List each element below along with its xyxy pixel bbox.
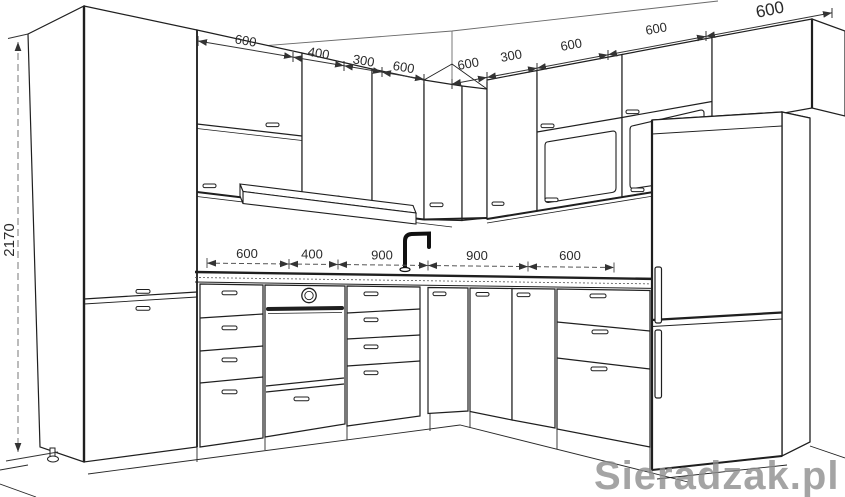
- dim-label: 600: [559, 248, 581, 263]
- dim-label: 600: [754, 0, 786, 22]
- drawer-handle: [222, 326, 237, 330]
- drawer-handle: [590, 294, 606, 298]
- door-handle: [433, 292, 446, 296]
- cabinet-handle: [545, 198, 558, 202]
- fridge-handle-upper: [655, 267, 662, 323]
- drawer-handle: [364, 292, 378, 296]
- kitchen-line-drawing: 600 400 300 600 600 300 600 600 600 600 …: [0, 0, 845, 497]
- cabinet-handle: [626, 110, 639, 114]
- cabinet-handle: [541, 124, 554, 128]
- dim-label: 600: [456, 54, 480, 73]
- dim-label: 600: [559, 35, 583, 54]
- cabinet-handle: [430, 203, 443, 207]
- drawer-handle: [222, 291, 237, 295]
- drawer-handle: [592, 330, 608, 334]
- dim-label: 600: [236, 246, 258, 261]
- cabinet-handle: [266, 123, 279, 127]
- tall-pantry-cabinet: [28, 6, 197, 462]
- oven-unit: [265, 285, 345, 437]
- oven-handle: [268, 308, 342, 309]
- dim-label: 400: [301, 247, 323, 262]
- door-handle: [476, 293, 489, 297]
- oven-knob: [305, 291, 313, 299]
- base-drawer-stack-right: [557, 289, 650, 447]
- cabinet-handle: [631, 188, 644, 192]
- drawer-handle: [591, 367, 607, 371]
- dim-label-height: 2170: [1, 223, 18, 256]
- refrigerator: [652, 112, 845, 479]
- kitchen-drawing-canvas: 600 400 300 600 600 300 600 600 600 600 …: [0, 0, 845, 497]
- dim-label: 900: [371, 247, 393, 262]
- adjustable-foot: [48, 456, 59, 462]
- cabinet-handle: [203, 184, 216, 188]
- glass-door-panel: [545, 131, 616, 202]
- door-handle: [517, 293, 530, 297]
- fridge-handle-lower: [655, 330, 662, 398]
- drawer-handle: [364, 345, 378, 349]
- drawer-handle: [294, 397, 309, 401]
- watermark: Sieradzak.pl: [594, 454, 839, 497]
- dim-label: 900: [466, 248, 488, 263]
- dim-label: 600: [644, 19, 668, 38]
- drawer-handle: [222, 358, 237, 362]
- cabinet-handle: [136, 307, 150, 311]
- base-door-cabinets: [428, 288, 555, 429]
- drawer-handle: [364, 318, 378, 322]
- base-drawer-stack-left: [200, 284, 263, 447]
- cabinet-handle: [492, 202, 504, 205]
- drawer-handle: [222, 390, 237, 394]
- corner-wall-cabinet: [424, 64, 487, 221]
- drawer-handle: [364, 371, 378, 375]
- above-fridge-tall-cabinet: [712, 19, 845, 126]
- cabinet-handle: [136, 290, 150, 294]
- dim-label: 300: [499, 46, 523, 65]
- base-drawer-stack-mid: [347, 286, 420, 426]
